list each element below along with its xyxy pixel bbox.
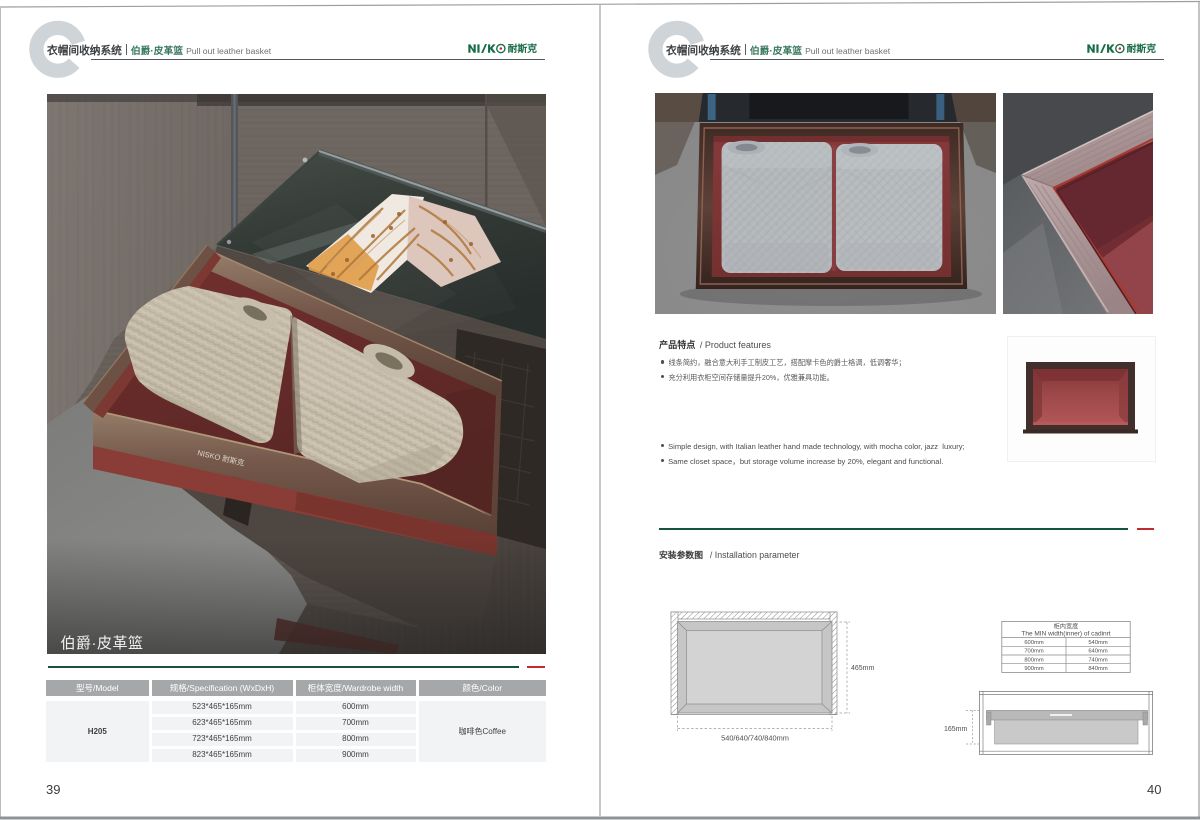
- svg-text:165mm: 165mm: [944, 726, 968, 733]
- svg-text:柜内宽度: 柜内宽度: [1054, 623, 1079, 631]
- svg-text:840mm: 840mm: [1088, 666, 1108, 672]
- svg-text:The MIN width(inner) of cadinr: The MIN width(inner) of cadinrt: [1021, 631, 1110, 638]
- svg-text:465mm: 465mm: [851, 665, 875, 672]
- svg-text:540mm: 540mm: [1088, 640, 1108, 646]
- svg-text:900mm: 900mm: [1024, 666, 1044, 672]
- svg-text:耐斯克: 耐斯克: [1127, 42, 1156, 55]
- svg-text:伯爵·皮革篮: 伯爵·皮革篮: [61, 634, 144, 652]
- svg-text:耐斯克: 耐斯克: [508, 42, 537, 55]
- svg-text:640mm: 640mm: [1088, 649, 1108, 655]
- svg-text:600mm: 600mm: [1024, 640, 1044, 646]
- svg-text:740mm: 740mm: [1088, 657, 1108, 663]
- svg-text:540/640/740/840mm: 540/640/740/840mm: [721, 734, 789, 743]
- svg-text:800mm: 800mm: [1024, 657, 1044, 663]
- svg-text:700mm: 700mm: [1024, 649, 1044, 655]
- svg-text:®: ®: [534, 44, 537, 48]
- svg-text:®: ®: [1153, 44, 1156, 48]
